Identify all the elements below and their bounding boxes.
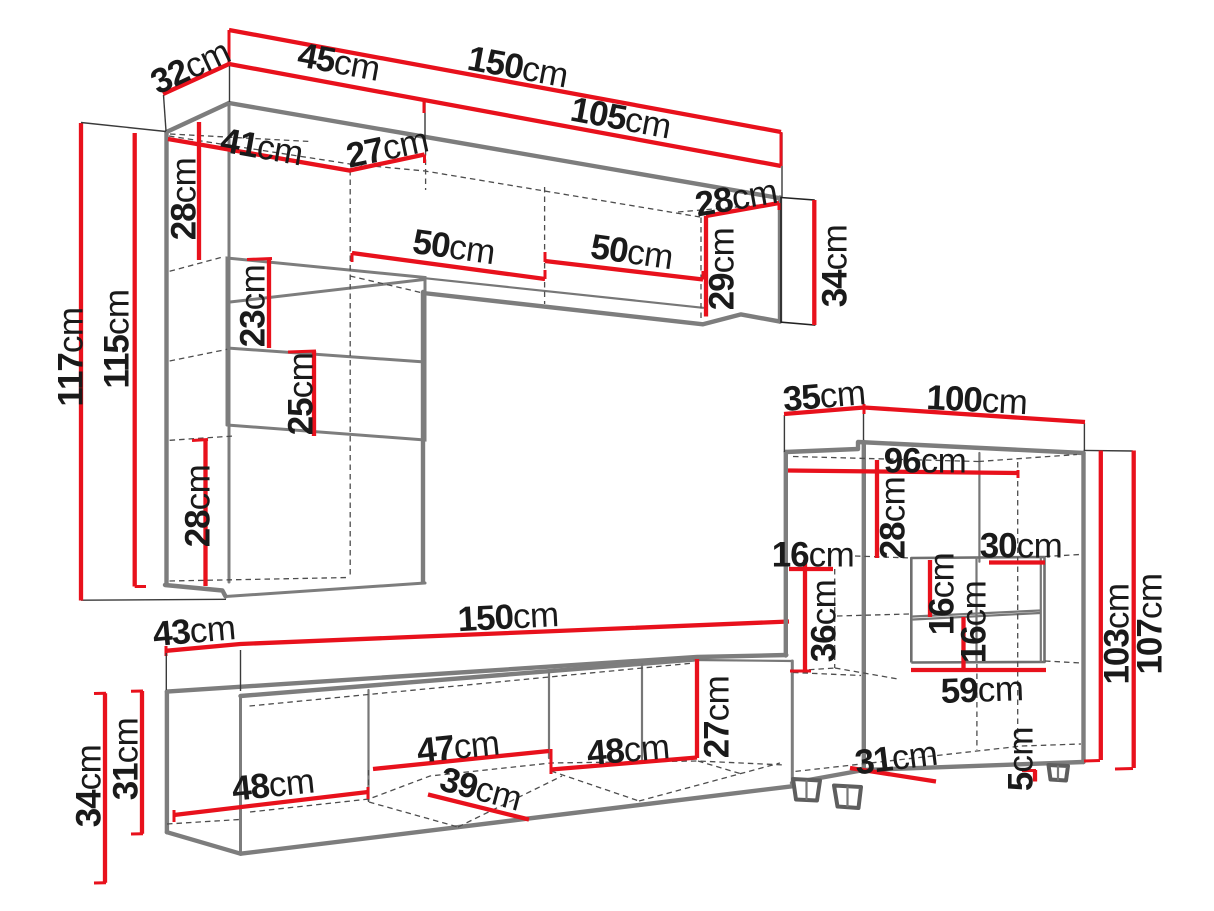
svg-text:100cm: 100cm <box>925 378 1028 422</box>
svg-text:28cm: 28cm <box>165 158 204 241</box>
svg-text:30cm: 30cm <box>980 527 1063 566</box>
svg-text:27cm: 27cm <box>698 676 737 759</box>
svg-text:34cm: 34cm <box>70 745 109 828</box>
svg-text:16cm: 16cm <box>955 581 994 664</box>
svg-text:5cm: 5cm <box>1002 727 1041 791</box>
svg-text:115cm: 115cm <box>98 289 137 388</box>
svg-text:36cm: 36cm <box>805 580 844 663</box>
svg-text:31cm: 31cm <box>107 718 146 801</box>
svg-text:29cm: 29cm <box>703 228 742 311</box>
svg-text:48cm: 48cm <box>585 727 671 773</box>
svg-text:117cm: 117cm <box>52 307 91 406</box>
svg-text:25cm: 25cm <box>282 353 321 436</box>
svg-text:34cm: 34cm <box>816 225 855 308</box>
svg-text:28cm: 28cm <box>874 477 913 560</box>
svg-text:150cm: 150cm <box>457 595 560 639</box>
svg-text:16cm: 16cm <box>772 536 855 575</box>
svg-text:28cm: 28cm <box>179 465 218 548</box>
svg-text:23cm: 23cm <box>234 265 273 348</box>
svg-text:107cm: 107cm <box>1131 573 1170 674</box>
svg-text:35cm: 35cm <box>781 373 867 419</box>
svg-text:96cm: 96cm <box>884 442 967 481</box>
svg-text:43cm: 43cm <box>151 608 237 654</box>
svg-text:59cm: 59cm <box>940 669 1024 711</box>
